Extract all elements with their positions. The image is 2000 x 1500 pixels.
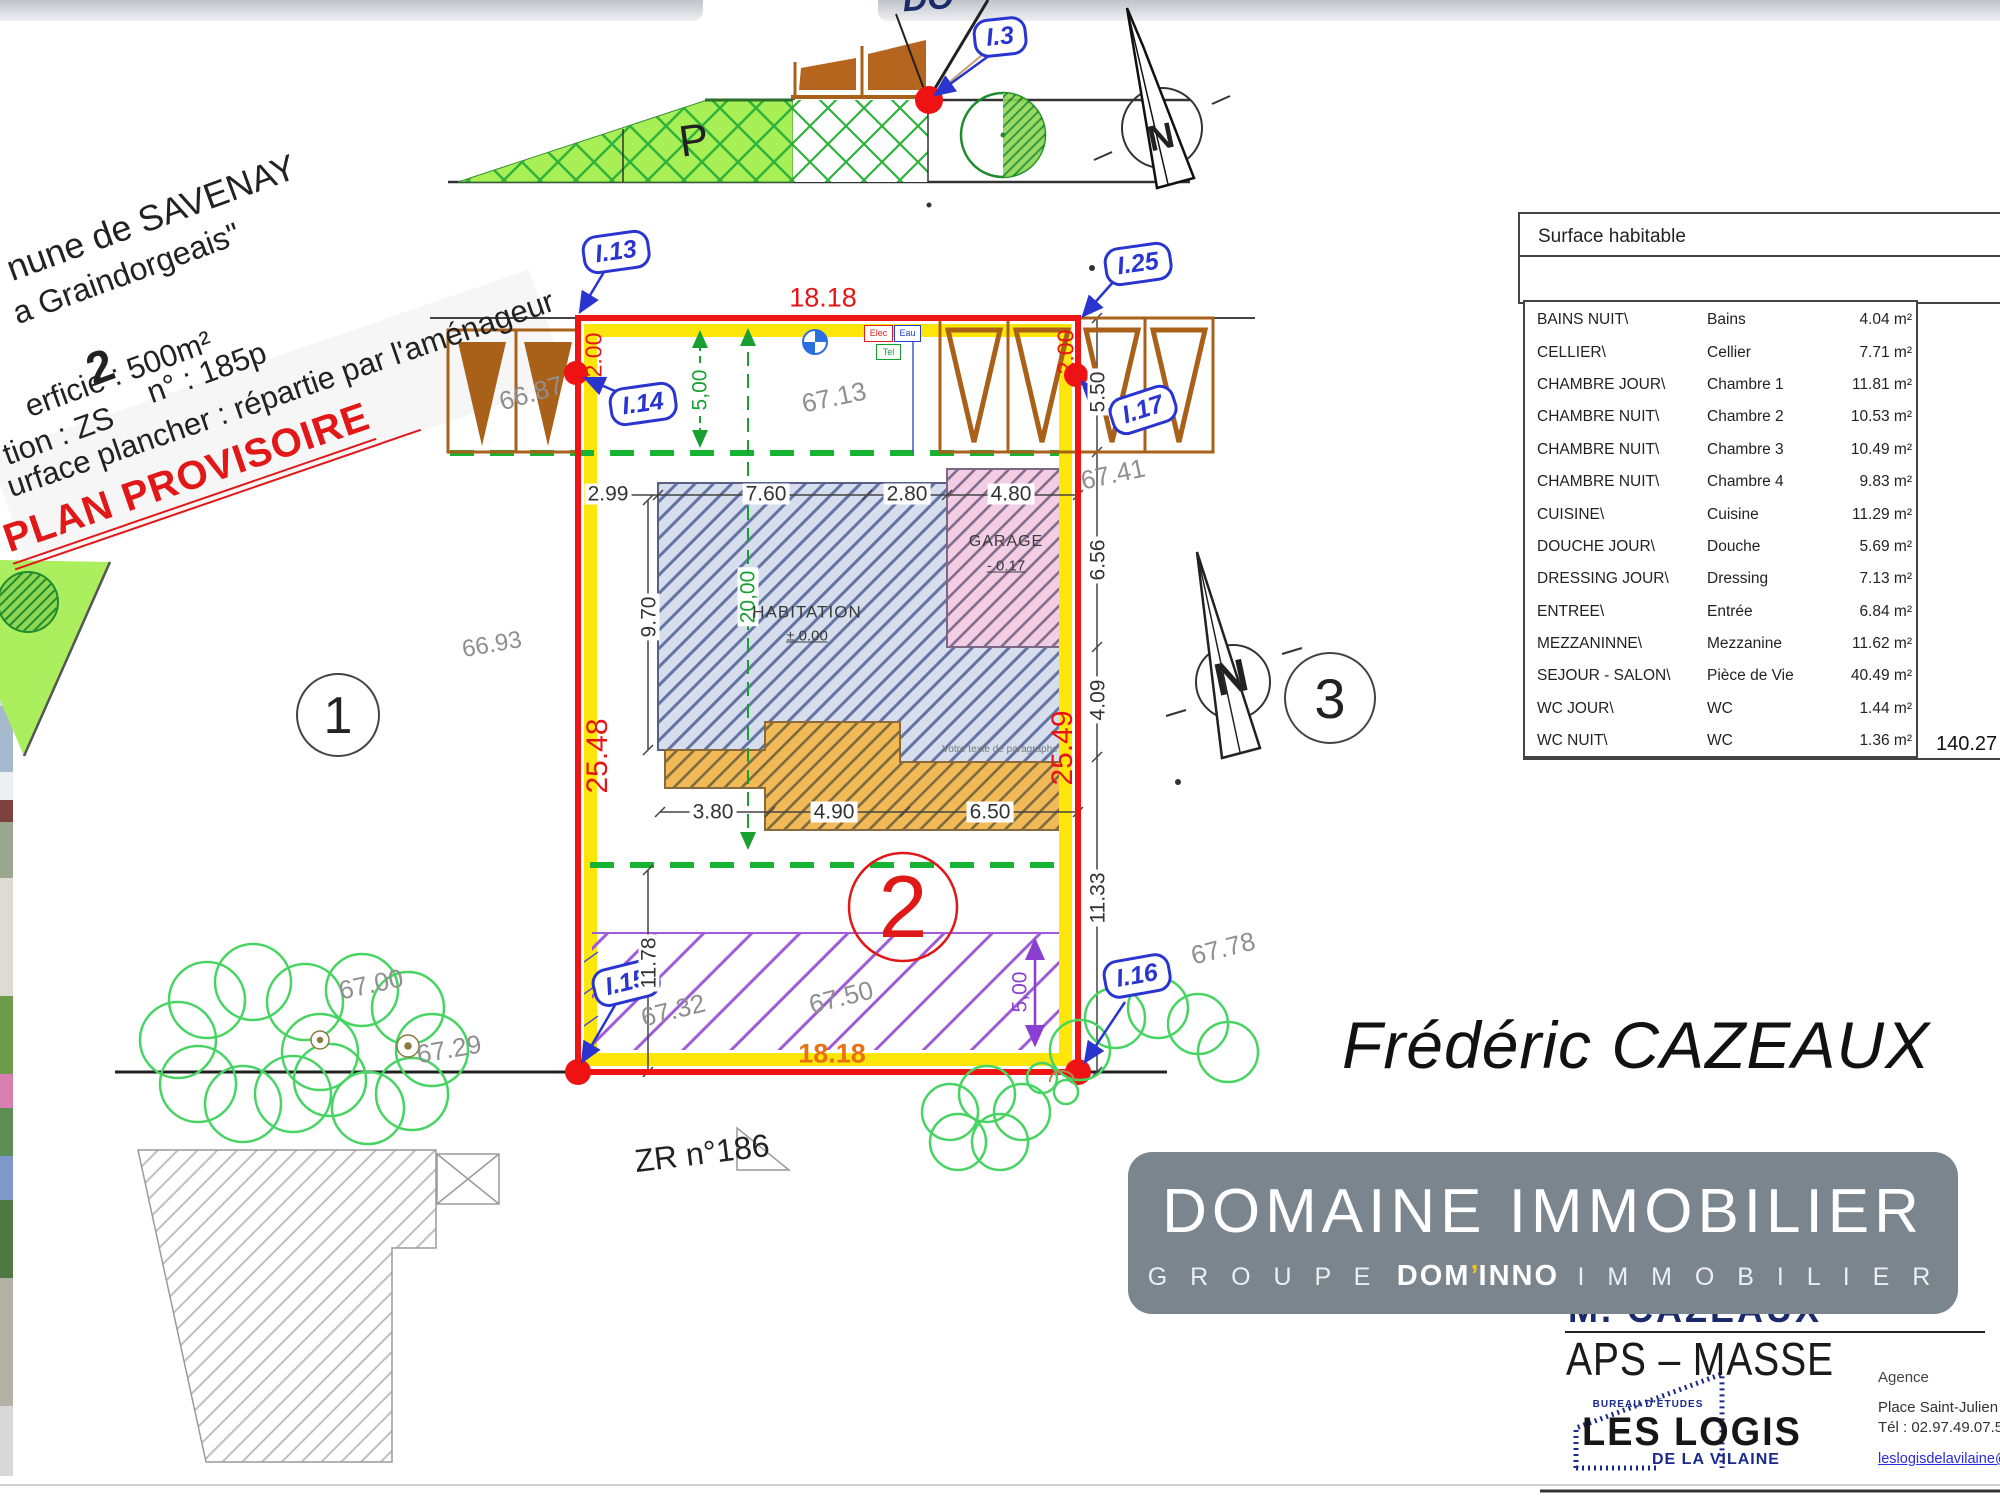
surface-table-bottom-line bbox=[1523, 758, 2000, 760]
table-row: WC JOUR\WC1.44 m² bbox=[1537, 693, 1916, 725]
dim-7-60: 7.60 bbox=[743, 484, 790, 505]
lot2-number: 2 bbox=[879, 863, 928, 951]
table-row: BAINS NUIT\Bains4.04 m² bbox=[1537, 304, 1916, 336]
table-row: CELLIER\Cellier7.71 m² bbox=[1537, 336, 1916, 368]
agency-email-link[interactable]: leslogisdelavilaine@b bbox=[1878, 1452, 2000, 1467]
dim-6-56: 6.56 bbox=[1088, 537, 1109, 584]
banner-sub-brand-a: DOM bbox=[1397, 1260, 1471, 1292]
parking-label: P bbox=[676, 117, 711, 165]
agency-address: Place Saint-Julien 56 1 bbox=[1878, 1400, 2000, 1415]
surface-table-total: 140.27 bbox=[1936, 734, 1997, 754]
compass-north-icon-top bbox=[1094, 8, 1230, 188]
surface-table-header: Surface habitable bbox=[1518, 212, 2000, 304]
point-label-i3: I.3 bbox=[971, 15, 1029, 59]
dim-11-33: 11.33 bbox=[1088, 870, 1109, 927]
dim-left-height: 25.48 bbox=[583, 718, 613, 793]
dim-4-09: 4.09 bbox=[1088, 677, 1109, 724]
dim-2-99: 2.99 bbox=[585, 484, 632, 505]
dim-4-90: 4.90 bbox=[811, 802, 858, 823]
agency-phone: Tél : 02.97.49.07.51 bbox=[1878, 1420, 2000, 1435]
logis-sub-label: DE LA VILAINE bbox=[1652, 1452, 1780, 1468]
tree-trunk-markers bbox=[311, 1031, 419, 1057]
table-row: CHAMBRE NUIT\Chambre 310.49 m² bbox=[1537, 434, 1916, 466]
lot1-number: 1 bbox=[324, 690, 353, 742]
domaine-immobilier-banner: DOMAINE IMMOBILIER G R O U P E DOM’INNO … bbox=[1128, 1152, 1958, 1314]
agency-label: Agence bbox=[1878, 1370, 1929, 1385]
site-plan-page: nune de SAVENAY a Graindorgeais" 2 erfic… bbox=[0, 0, 2000, 1500]
surface-table-body: BAINS NUIT\Bains4.04 m² CELLIER\Cellier7… bbox=[1523, 300, 1918, 758]
utility-elec-box: Elec bbox=[864, 325, 893, 342]
garage-level: - 0.17 bbox=[987, 559, 1025, 574]
dim-purple-back: 5,00 bbox=[1010, 969, 1031, 1016]
table-row: CHAMBRE JOUR\Chambre 111.81 m² bbox=[1537, 369, 1916, 401]
agent-name: Frédéric CAZEAUX bbox=[1342, 1012, 1930, 1078]
table-row: SEJOUR - SALON\Pièce de Vie40.49 m² bbox=[1537, 660, 1916, 692]
dim-5-50: 5.50 bbox=[1088, 369, 1109, 416]
dim-9-70: 9.70 bbox=[639, 594, 660, 641]
table-row: CUISINE\Cuisine11.29 m² bbox=[1537, 498, 1916, 530]
green-wedge bbox=[0, 560, 110, 756]
dim-3-80: 3.80 bbox=[690, 802, 737, 823]
survey-marker-icon bbox=[803, 330, 827, 354]
partial-top-text: DO bbox=[901, 0, 954, 17]
table-row: ENTREE\Entrée6.84 m² bbox=[1537, 596, 1916, 628]
banner-sub-groupe: G R O U P E bbox=[1148, 1263, 1379, 1291]
dim-bottom-width: 18.18 bbox=[798, 1041, 866, 1068]
utility-tel-box: Tel bbox=[876, 344, 901, 360]
top-elevation-section bbox=[448, 0, 1230, 271]
table-row: DRESSING JOUR\Dressing7.13 m² bbox=[1537, 563, 1916, 595]
banner-sub-apostrophe: ’ bbox=[1470, 1260, 1478, 1292]
banner-sub-immobilier: I M M O B I L I E R bbox=[1577, 1263, 1938, 1291]
table-row: MEZZANINNE\Mezzanine11.62 m² bbox=[1537, 628, 1916, 660]
dim-6-50: 6.50 bbox=[967, 802, 1014, 823]
dim-left-offset: 2.00 bbox=[583, 333, 606, 378]
banner-sub-brand-b: INNO bbox=[1479, 1260, 1560, 1292]
tree-icon bbox=[961, 93, 1045, 177]
dim-green-front: 5,00 bbox=[690, 367, 711, 414]
dim-2-80: 2.80 bbox=[884, 484, 931, 505]
table-row: DOUCHE JOUR\Douche5.69 m² bbox=[1537, 531, 1916, 563]
dim-right-offset: 2.00 bbox=[1055, 330, 1078, 375]
aps-masse-label: APS – MASSE bbox=[1566, 1336, 1834, 1382]
table-row: CHAMBRE NUIT\Chambre 210.53 m² bbox=[1537, 401, 1916, 433]
dim-11-78: 11.78 bbox=[639, 935, 660, 992]
logis-name-label: LES LOGIS bbox=[1582, 1412, 1802, 1452]
banner-title: DOMAINE IMMOBILIER bbox=[1128, 1176, 1958, 1247]
dim-top-width: 18.18 bbox=[789, 285, 857, 312]
lot3-number: 3 bbox=[1314, 671, 1345, 727]
dim-4-80: 4.80 bbox=[988, 484, 1035, 505]
table-row: CHAMBRE NUIT\Chambre 49.83 m² bbox=[1537, 466, 1916, 498]
surface-table-title: Surface habitable bbox=[1538, 227, 1686, 246]
garage-label: GARAGE bbox=[969, 534, 1043, 550]
utility-eau-box: Eau bbox=[894, 325, 921, 342]
habitation-level: ± 0.00 bbox=[786, 629, 828, 644]
habitation-label: HABITATION bbox=[752, 604, 862, 621]
existing-building bbox=[138, 1128, 789, 1462]
logis-bureau-label: BUREAU D'ÉTUDES bbox=[1593, 1400, 1704, 1410]
paragraph-placeholder-note: Votre texte de paragraphe bbox=[942, 745, 1058, 755]
table-row: WC NUIT\WC1.36 m² bbox=[1537, 725, 1916, 757]
